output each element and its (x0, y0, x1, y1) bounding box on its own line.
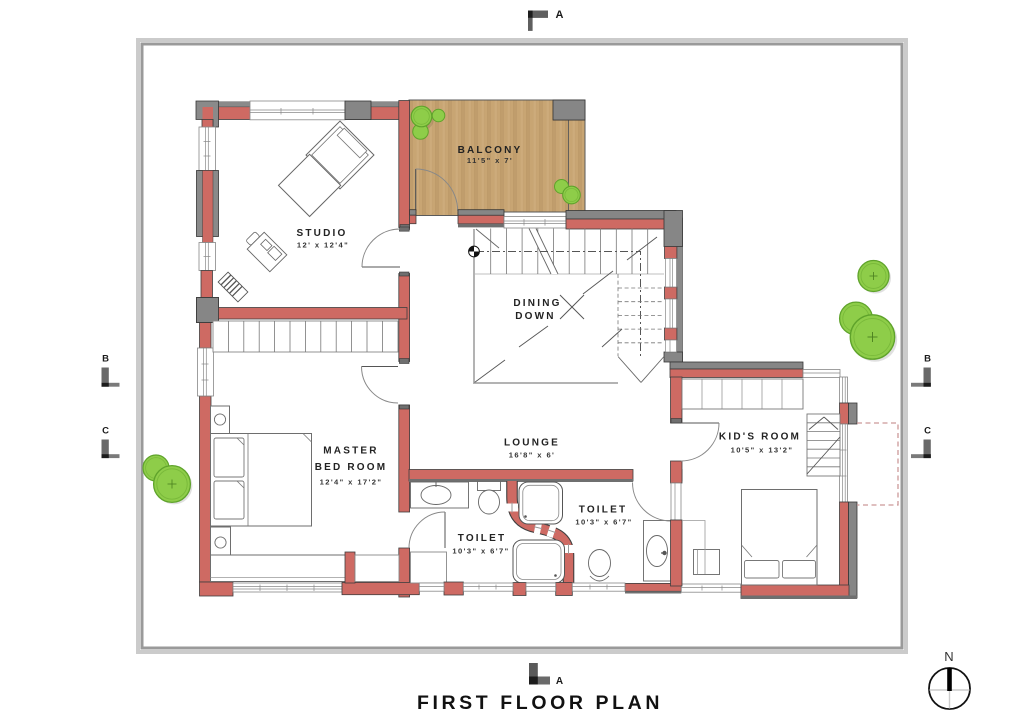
svg-text:N: N (944, 649, 954, 664)
svg-text:BALCONY: BALCONY (458, 145, 523, 156)
svg-text:11'5" x 7': 11'5" x 7' (467, 156, 513, 165)
svg-text:A: A (556, 9, 565, 21)
svg-text:C: C (102, 426, 109, 437)
svg-text:12' x 12'4": 12' x 12'4" (297, 241, 349, 250)
svg-text:10'3" x 6'7": 10'3" x 6'7" (575, 518, 632, 527)
svg-text:DINING: DINING (513, 298, 561, 309)
svg-text:MASTER: MASTER (323, 446, 378, 457)
svg-text:DOWN: DOWN (515, 311, 555, 322)
svg-text:12'4" x 17'2": 12'4" x 17'2" (320, 478, 383, 487)
svg-text:TOILET: TOILET (458, 533, 507, 544)
svg-text:A: A (556, 676, 564, 687)
svg-text:C: C (924, 426, 931, 437)
svg-text:LOUNGE: LOUNGE (504, 438, 560, 449)
svg-text:STUDIO: STUDIO (297, 228, 348, 239)
svg-text:FIRST FLOOR PLAN: FIRST FLOOR PLAN (417, 692, 663, 714)
svg-text:KID'S ROOM: KID'S ROOM (719, 432, 801, 443)
svg-text:B: B (924, 354, 931, 365)
svg-text:10'3" x 6'7": 10'3" x 6'7" (452, 547, 509, 556)
svg-text:BED ROOM: BED ROOM (315, 462, 388, 473)
svg-text:TOILET: TOILET (579, 505, 628, 516)
svg-text:B: B (102, 354, 109, 365)
svg-text:16'8" x 6': 16'8" x 6' (509, 451, 556, 460)
svg-text:10'5" x 13'2": 10'5" x 13'2" (731, 446, 794, 455)
